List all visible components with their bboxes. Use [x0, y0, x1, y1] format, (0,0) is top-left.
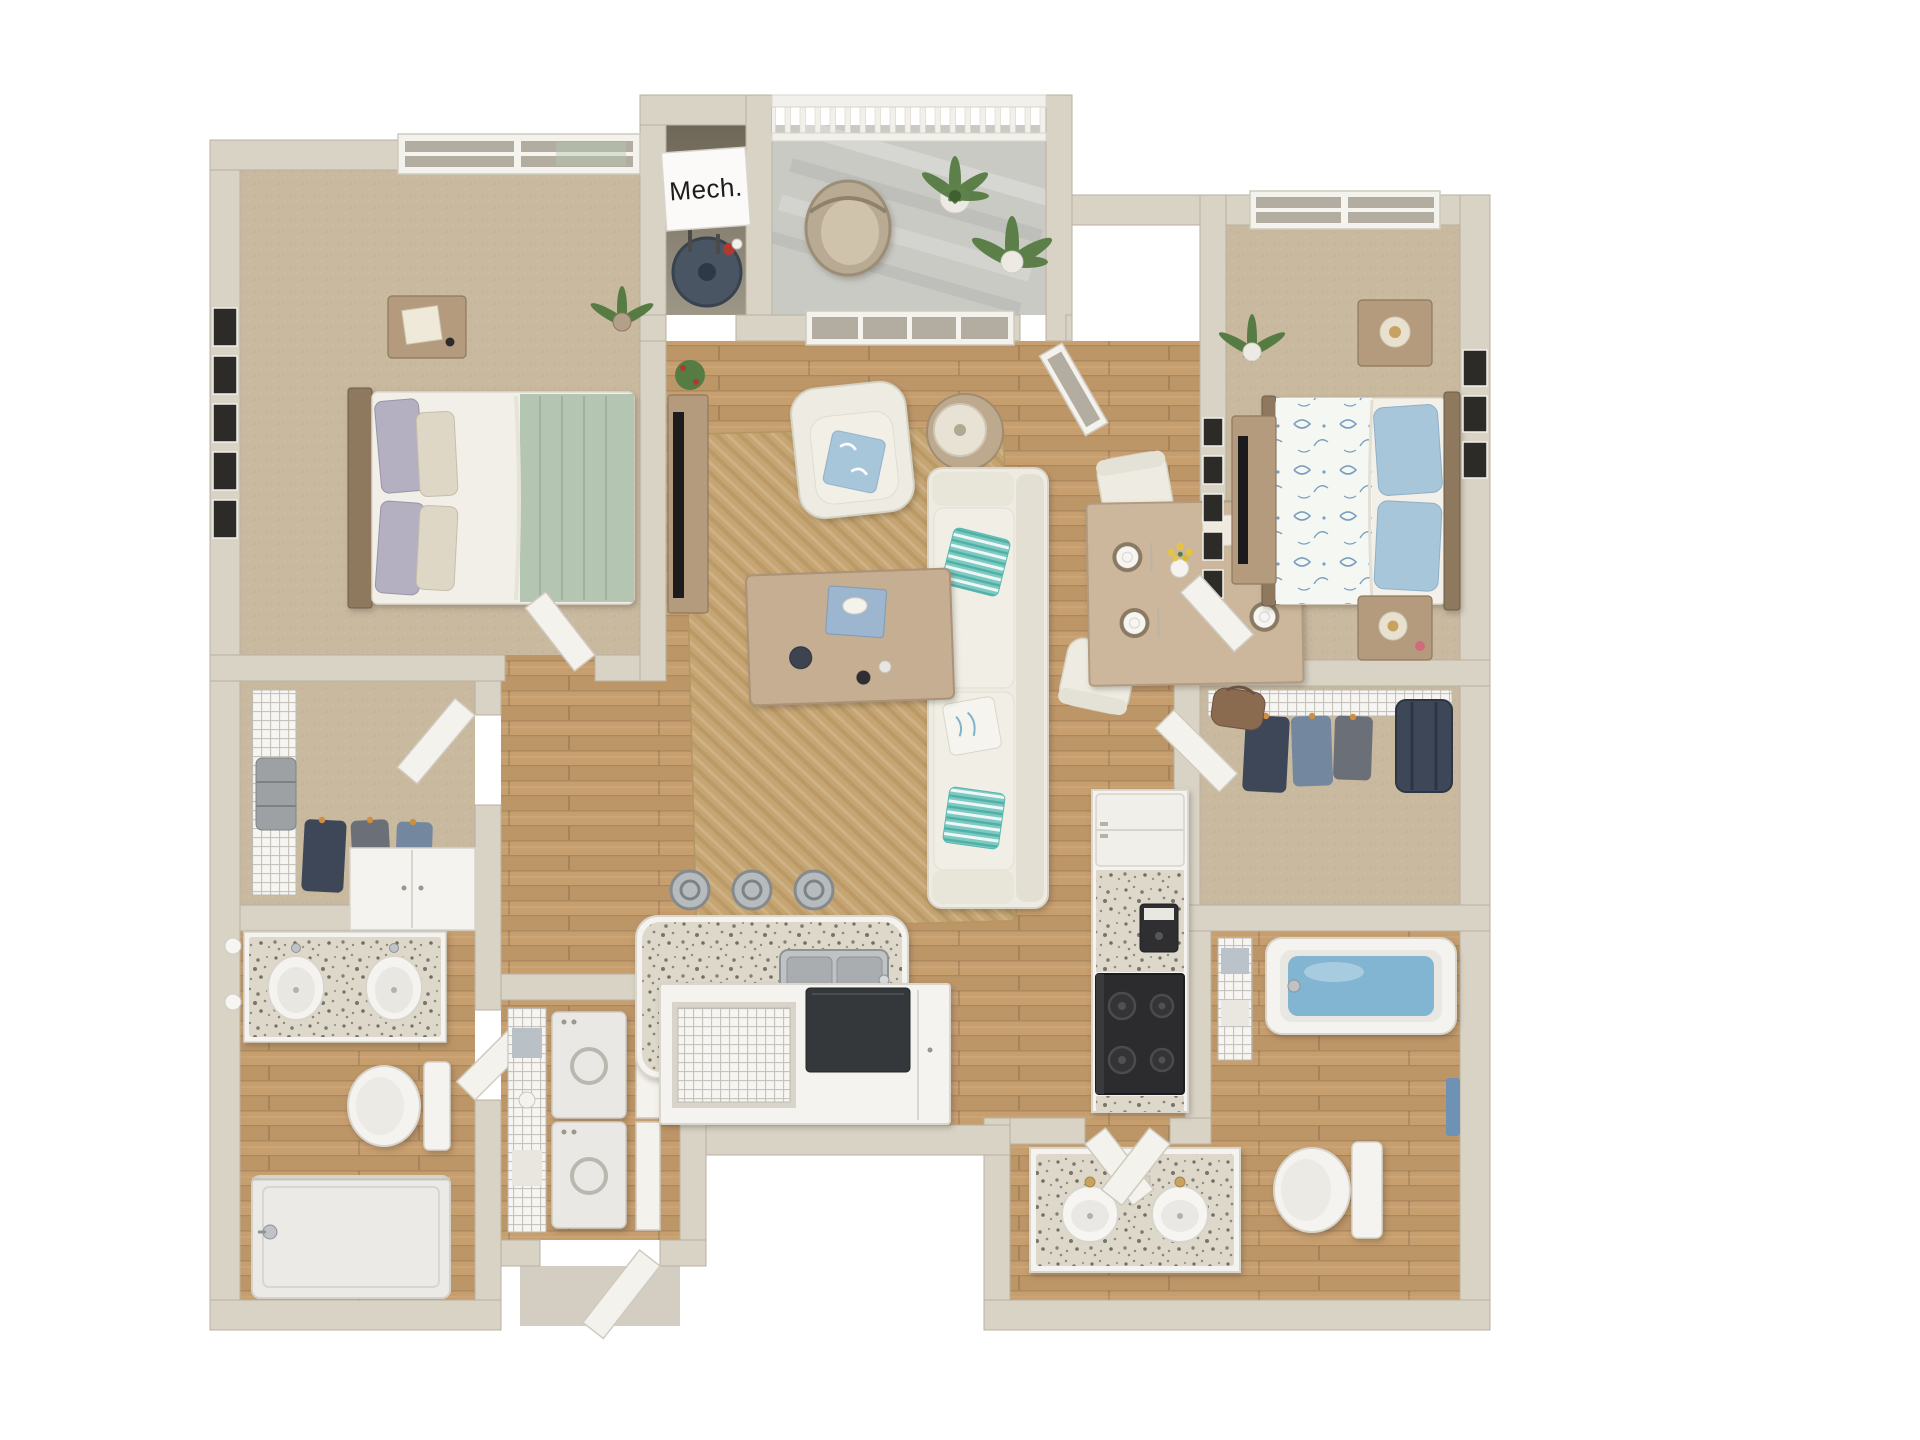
faucet-2a [1085, 1177, 1095, 1187]
closet1-suitcase [256, 758, 296, 830]
wall-sconce-b [225, 994, 241, 1010]
bath-water [1288, 956, 1434, 1016]
wall-bedroom1-right [640, 125, 666, 681]
coffee-table [746, 568, 954, 705]
nightstand-1 [388, 296, 466, 358]
bed1-pillow-cream-a [416, 411, 458, 497]
wall-bedroom1-bottom-b [595, 655, 640, 681]
bedroom1-gallery-frames [213, 308, 237, 538]
shower-1 [252, 1176, 450, 1298]
range [1096, 974, 1184, 1094]
towel-folded-white [512, 1150, 542, 1186]
wall-living-top-c [1066, 315, 1072, 341]
bedroom2-tv [1238, 436, 1248, 564]
living-room-window [806, 311, 1014, 345]
mech-label-plate: Mech. [661, 147, 750, 231]
shell-decor [843, 597, 868, 614]
floor-plan-render: Mech. [0, 0, 1920, 1440]
wall-walkin-bottom [1174, 905, 1490, 931]
bedroom2-window [1250, 191, 1440, 229]
television [673, 412, 684, 598]
wall-exterior-bottom-left [210, 1300, 501, 1330]
wall-kitchen-bath2-a [1010, 1118, 1085, 1144]
pillow-teal-stripe-b [942, 786, 1005, 849]
faucet-2b [1175, 1177, 1185, 1187]
wall-kitchen-bath2-b [1170, 1118, 1211, 1144]
dryer [552, 1122, 626, 1228]
wicker-chair [806, 181, 890, 275]
wall-hall-left-c [475, 1100, 501, 1330]
bedroom2-frames-right-wall [1463, 350, 1487, 478]
toilet-2 [1274, 1142, 1382, 1238]
laundry-door-b [636, 1122, 660, 1230]
kitchen-counter-right [1092, 790, 1188, 1112]
bed-1 [348, 388, 634, 608]
dresser-tv [1232, 416, 1276, 584]
detergent-cup [519, 1092, 535, 1108]
wall-bedroom1-bottom-a [210, 655, 505, 681]
wall-balcony-right [1046, 95, 1072, 341]
bedroom1-window [398, 134, 640, 174]
walkin-suitcase [1396, 700, 1452, 792]
dark-counter-cart [806, 988, 910, 1072]
wall-kitchen-bottom [706, 1125, 1010, 1155]
balcony-railing [772, 95, 1046, 141]
bed1-headboard [348, 388, 372, 608]
toilet-1 [348, 1062, 450, 1150]
towel-folded-blue [512, 1028, 542, 1058]
console-plant [675, 360, 705, 390]
nightstand-2b [1358, 596, 1432, 660]
faucet-1a [292, 944, 301, 953]
bed1-sage-throw [520, 394, 634, 602]
deco-small-white [879, 661, 891, 673]
linen-towel-b [1221, 1000, 1249, 1026]
lamp-bed1 [402, 306, 442, 345]
tv-console [668, 360, 708, 613]
wall-laundry-bottom-b [660, 1240, 706, 1266]
refrigerator [1096, 794, 1184, 866]
pink-decor [1415, 641, 1425, 651]
bathroom1-vanity [244, 932, 446, 1042]
wall-hall-left-b [475, 805, 501, 1010]
bed2-pillow-blue-b [1374, 500, 1443, 591]
nightstand-2a [1358, 300, 1432, 366]
wire-basket-cart [678, 1008, 790, 1102]
coffee-maker [1140, 904, 1178, 952]
wall-exterior-bottom-right [984, 1300, 1490, 1330]
faucet-1b [390, 944, 399, 953]
bed2-headboard [1444, 392, 1460, 610]
hanging-towel [1446, 1078, 1460, 1136]
alarm-clock [446, 338, 455, 347]
side-table-lamp [927, 394, 1003, 470]
pillow-coral-print [942, 696, 1002, 756]
armchair-pillow [822, 430, 886, 494]
bar-stool-1 [671, 871, 709, 909]
valve-white [732, 239, 742, 249]
armchair [789, 379, 917, 520]
wall-laundry-bottom-a [501, 1240, 540, 1266]
bed1-pillow-cream-b [416, 505, 458, 591]
kitchen-bottom-cabinet [660, 984, 950, 1124]
dining-wall-gallery-frames [1203, 418, 1223, 598]
bed2-pillow-blue-a [1373, 404, 1443, 496]
mech-label: Mech. [668, 171, 743, 206]
tub-faucet [1288, 980, 1300, 992]
vase-dark [789, 646, 812, 669]
mech-closet: Mech. [661, 147, 750, 306]
wall-living-top-a [640, 315, 666, 341]
folded-clothes-stack [1430, 726, 1450, 741]
linen-towel-a [1221, 948, 1249, 974]
bathtub [1266, 938, 1456, 1034]
bar-stools [671, 871, 833, 909]
wall-hall-left-a [475, 681, 501, 715]
wall-sconce-a [225, 938, 241, 954]
floor-plan-stage: Mech. [0, 0, 1920, 1440]
bar-stool-2 [733, 871, 771, 909]
bed-2 [1262, 392, 1460, 610]
washer [552, 1012, 626, 1118]
bar-stool-3 [795, 871, 833, 909]
